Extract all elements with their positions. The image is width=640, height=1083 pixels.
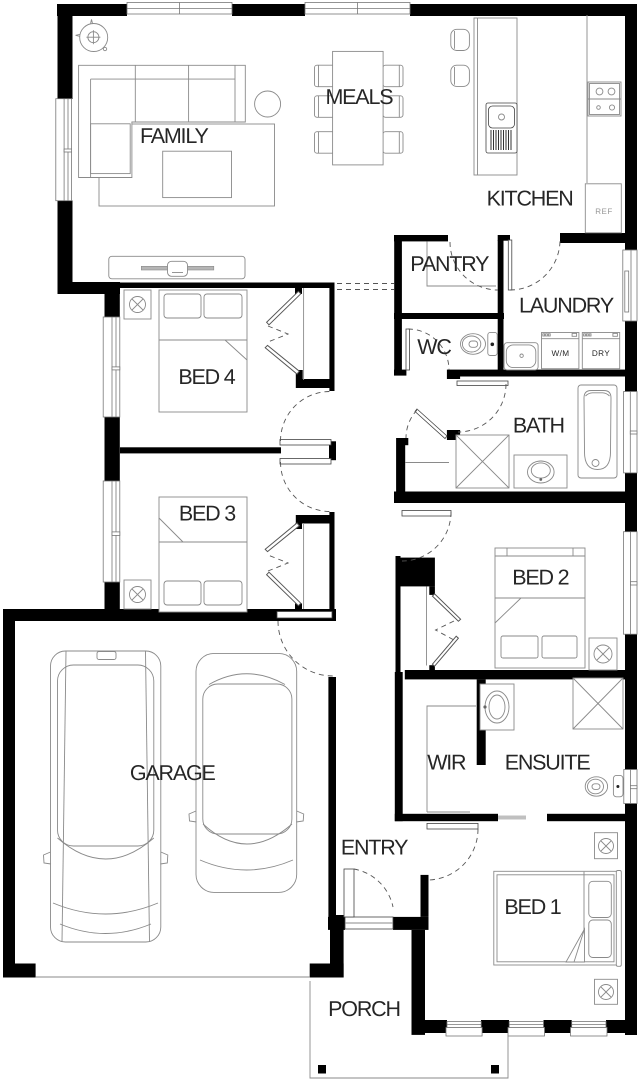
svg-text:WIR: WIR — [427, 751, 466, 775]
svg-text:PANTRY: PANTRY — [410, 252, 489, 276]
svg-text:BED 1: BED 1 — [504, 895, 560, 919]
svg-text:BED 3: BED 3 — [179, 502, 236, 526]
svg-text:ENSUITE: ENSUITE — [505, 751, 591, 775]
svg-text:REF: REF — [595, 207, 613, 216]
svg-text:WC: WC — [417, 335, 451, 359]
svg-text:KITCHEN: KITCHEN — [487, 186, 573, 210]
svg-text:DRY: DRY — [592, 349, 610, 358]
svg-text:PORCH: PORCH — [328, 997, 400, 1021]
svg-text:W/M: W/M — [551, 349, 569, 358]
svg-text:FAMILY: FAMILY — [140, 124, 209, 148]
svg-text:BED 2: BED 2 — [512, 565, 568, 589]
svg-text:GARAGE: GARAGE — [130, 761, 216, 785]
svg-text:LAUNDRY: LAUNDRY — [519, 293, 614, 317]
svg-text:MEALS: MEALS — [325, 85, 393, 109]
svg-text:BATH: BATH — [513, 413, 564, 437]
svg-text:BED 4: BED 4 — [178, 365, 235, 389]
svg-text:ENTRY: ENTRY — [341, 836, 408, 860]
